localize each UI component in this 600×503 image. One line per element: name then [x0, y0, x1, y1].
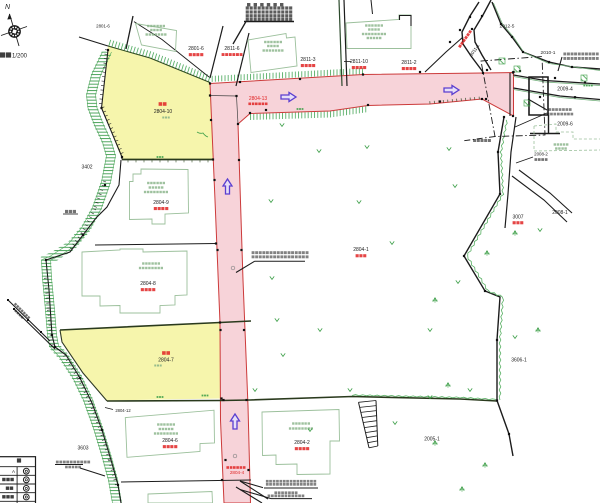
svg-text:3402: 3402: [81, 165, 92, 171]
svg-text:2804-4: 2804-4: [230, 470, 245, 475]
svg-text:2801-6: 2801-6: [96, 24, 110, 29]
svg-text:2801-6: 2801-6: [188, 46, 204, 52]
svg-text:2811-6: 2811-6: [224, 46, 239, 52]
svg-text:3606-1: 3606-1: [511, 358, 527, 364]
svg-text:2009-4: 2009-4: [557, 87, 573, 93]
svg-text:2008-1: 2008-1: [552, 210, 568, 216]
svg-text:2804-2: 2804-2: [294, 440, 310, 446]
svg-text:2804-1: 2804-1: [353, 247, 369, 253]
svg-text:1/200: 1/200: [12, 53, 28, 59]
svg-text:2804-7: 2804-7: [158, 358, 174, 364]
svg-text:2811-2: 2811-2: [401, 60, 416, 66]
svg-text:2811-10: 2811-10: [350, 59, 368, 65]
svg-text:2804-9: 2804-9: [153, 200, 169, 206]
svg-text:2811-3: 2811-3: [300, 57, 315, 63]
svg-text:2008-2: 2008-2: [534, 152, 548, 157]
svg-text:2005-1: 2005-1: [424, 437, 440, 443]
svg-text:2804-12: 2804-12: [115, 408, 131, 413]
svg-text:2804-8: 2804-8: [140, 281, 156, 287]
svg-text:2804-10: 2804-10: [154, 109, 173, 115]
svg-text:2012-5: 2012-5: [500, 24, 515, 30]
svg-text:2804-13: 2804-13: [249, 96, 268, 102]
svg-text:3603: 3603: [77, 446, 88, 452]
svg-text:2009-6: 2009-6: [557, 122, 573, 128]
svg-text:3007: 3007: [512, 215, 523, 221]
svg-text:2010-1: 2010-1: [541, 50, 556, 56]
svg-text:A: A: [12, 469, 15, 474]
svg-text:2804-6: 2804-6: [162, 438, 178, 444]
